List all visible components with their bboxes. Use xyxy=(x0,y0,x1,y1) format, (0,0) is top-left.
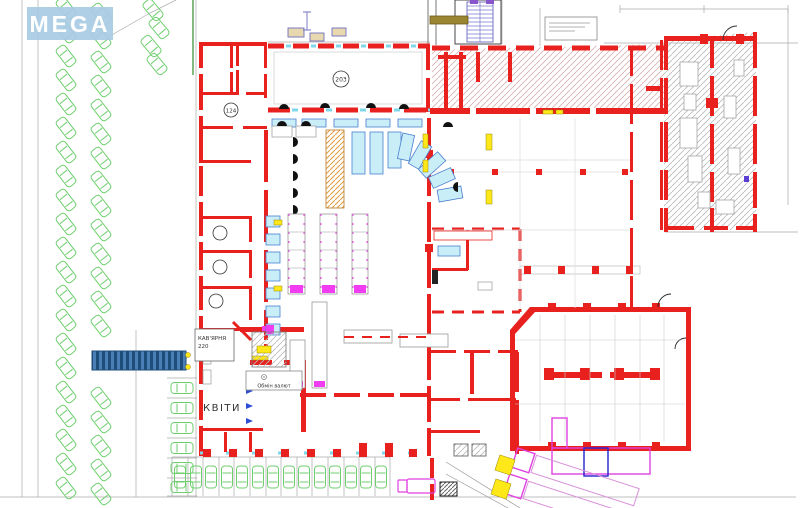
checkout-lanes xyxy=(266,216,280,335)
currency-exchange-box: Обмін валют xyxy=(246,371,302,390)
note-box xyxy=(545,17,597,40)
outdoor-tables xyxy=(288,12,346,41)
shelving-orange-hatch xyxy=(326,130,344,208)
stair-shaft xyxy=(430,0,501,44)
cafe-label-box: КАВ'ЯРНЯ 220 xyxy=(195,329,234,361)
floor-plan-screenshot: 203 124 КАВ'ЯРНЯ 220 КВІТИ Обмін валют M… xyxy=(0,0,800,508)
flowers-label: КВІТИ xyxy=(203,403,241,414)
currency-exchange-label: Обмін валют xyxy=(257,384,290,390)
mega-watermark-text: MEGA xyxy=(30,11,111,37)
beam xyxy=(430,16,468,24)
truck xyxy=(504,474,632,508)
gondola-shelving xyxy=(288,214,448,388)
floor-plan-drawing: 203 124 КАВ'ЯРНЯ 220 КВІТИ Обмін валют M… xyxy=(0,0,800,508)
room-number-label: 124 xyxy=(226,109,237,115)
cafe-area: 220 xyxy=(198,344,209,350)
truck xyxy=(512,448,640,507)
travelator xyxy=(92,351,191,370)
cafe-name: КАВ'ЯРНЯ xyxy=(198,336,226,342)
north-service-band xyxy=(432,44,664,112)
mega-watermark: MEGA xyxy=(27,7,113,40)
dock-ramp xyxy=(491,479,511,499)
truck-west xyxy=(398,479,435,493)
dock-ramp xyxy=(495,455,515,475)
hall-number-label: 203 xyxy=(335,77,347,84)
parking-west xyxy=(55,0,170,506)
